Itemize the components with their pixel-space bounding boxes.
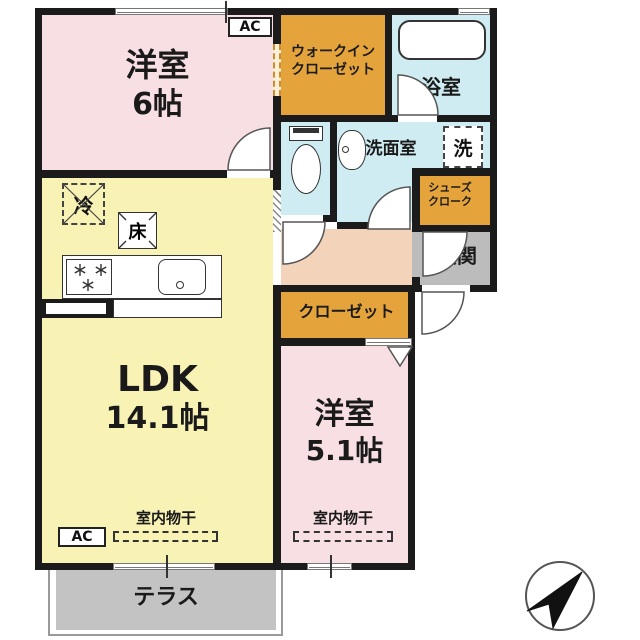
window-bathroom-top bbox=[458, 8, 490, 15]
drying-label-ldk: 室内物干 bbox=[110, 510, 222, 527]
ac-bottom-label: AC bbox=[71, 529, 92, 545]
wall-top bbox=[35, 8, 497, 15]
wall-shoe-bottom bbox=[412, 225, 490, 232]
wic-open-doorway bbox=[273, 44, 281, 96]
washer-box: 洗 bbox=[443, 126, 483, 168]
washer-label: 洗 bbox=[453, 134, 472, 161]
terrace-label: テラス bbox=[56, 586, 276, 610]
closet-label: クローゼット bbox=[281, 303, 412, 321]
washroom-label: 洗面室 bbox=[340, 140, 442, 159]
refrigerator-box: 冷 bbox=[62, 183, 105, 225]
compass-icon bbox=[526, 562, 594, 630]
bedroom6-size: 6帖 bbox=[42, 88, 273, 121]
kitchen-stove bbox=[66, 259, 112, 295]
wic-label-line1: ウォークイン bbox=[283, 45, 383, 60]
drying-rail-bedroom51 bbox=[293, 531, 393, 542]
wall-divider-upper-a bbox=[273, 15, 281, 44]
ldk-hall-partition-hatch bbox=[273, 190, 281, 232]
ldk-name: LDK bbox=[42, 360, 273, 400]
bathroom-label: 浴室 bbox=[392, 76, 490, 98]
genkan-label: 玄関 bbox=[424, 245, 490, 267]
drying-label-bedroom51: 室内物干 bbox=[290, 510, 396, 527]
wall-closet-bottom bbox=[281, 338, 365, 346]
floor-storage-label: 床 bbox=[129, 218, 147, 244]
toilet-bowl bbox=[291, 144, 321, 194]
wall-washroom-bottom bbox=[337, 222, 368, 229]
kitchen-sink bbox=[158, 259, 206, 295]
window-ldk-terrace-door bbox=[113, 563, 215, 570]
wall-toilet-bottom bbox=[323, 215, 337, 222]
wall-wic-bath-divider bbox=[385, 15, 392, 115]
kitchen-stub-opening bbox=[46, 303, 106, 314]
wall-bedroom6-bottom-a bbox=[42, 170, 227, 178]
shoe-cloak-label-line1: シューズ bbox=[418, 182, 482, 194]
bedroom51-name: 洋室 bbox=[281, 398, 408, 431]
ac-unit-bottom: AC bbox=[58, 527, 106, 547]
closet-door-track bbox=[365, 338, 412, 346]
door-entrance bbox=[422, 292, 464, 334]
bedroom6-name: 洋室 bbox=[42, 48, 273, 83]
wall-left bbox=[35, 8, 42, 570]
wall-genkan-bottom-b bbox=[470, 285, 497, 292]
toilet-tank-lid bbox=[293, 128, 319, 133]
ac-unit-top: AC bbox=[228, 17, 272, 37]
wall-bedroom6-bottom-b bbox=[270, 170, 281, 178]
room-hallway bbox=[281, 229, 412, 285]
window-bedroom6-top bbox=[115, 8, 228, 15]
window-bedroom51-bottom bbox=[307, 563, 352, 570]
ac-top-label: AC bbox=[239, 19, 260, 35]
wall-divider-lower bbox=[273, 292, 281, 563]
wall-wic-bath-bottom-b bbox=[437, 115, 490, 122]
wall-bottom bbox=[35, 563, 415, 570]
wall-wic-bath-bottom-a bbox=[281, 115, 398, 122]
wic-label-line2: クローゼット bbox=[283, 63, 383, 78]
bedroom51-size: 5.1帖 bbox=[281, 436, 408, 467]
refrigerator-label: 冷 bbox=[74, 190, 94, 219]
floor-storage-box: 床 bbox=[118, 212, 157, 249]
wall-hall-bottom bbox=[273, 285, 412, 292]
bathtub bbox=[398, 20, 486, 60]
wall-right-upper bbox=[490, 8, 497, 292]
wall-right-lower bbox=[408, 292, 415, 570]
ldk-size: 14.1帖 bbox=[42, 402, 273, 435]
wall-washer-shoe-divider bbox=[412, 168, 490, 176]
shoe-cloak-label-line2: クローク bbox=[418, 196, 482, 208]
wall-genkan-bottom-a bbox=[412, 285, 422, 292]
kitchen-sink-drain bbox=[176, 281, 184, 289]
kitchen-counter-lower bbox=[113, 299, 222, 318]
wall-toilet-right bbox=[330, 115, 337, 222]
wall-divider-upper-b bbox=[273, 96, 281, 170]
floor-plan: 冷 床 洗 AC AC 洋室 6帖 ウォークイン クローゼット 浴室 洗面室 シ… bbox=[0, 0, 640, 640]
drying-rail-ldk bbox=[113, 531, 218, 542]
wall-divider-stub bbox=[273, 178, 281, 190]
